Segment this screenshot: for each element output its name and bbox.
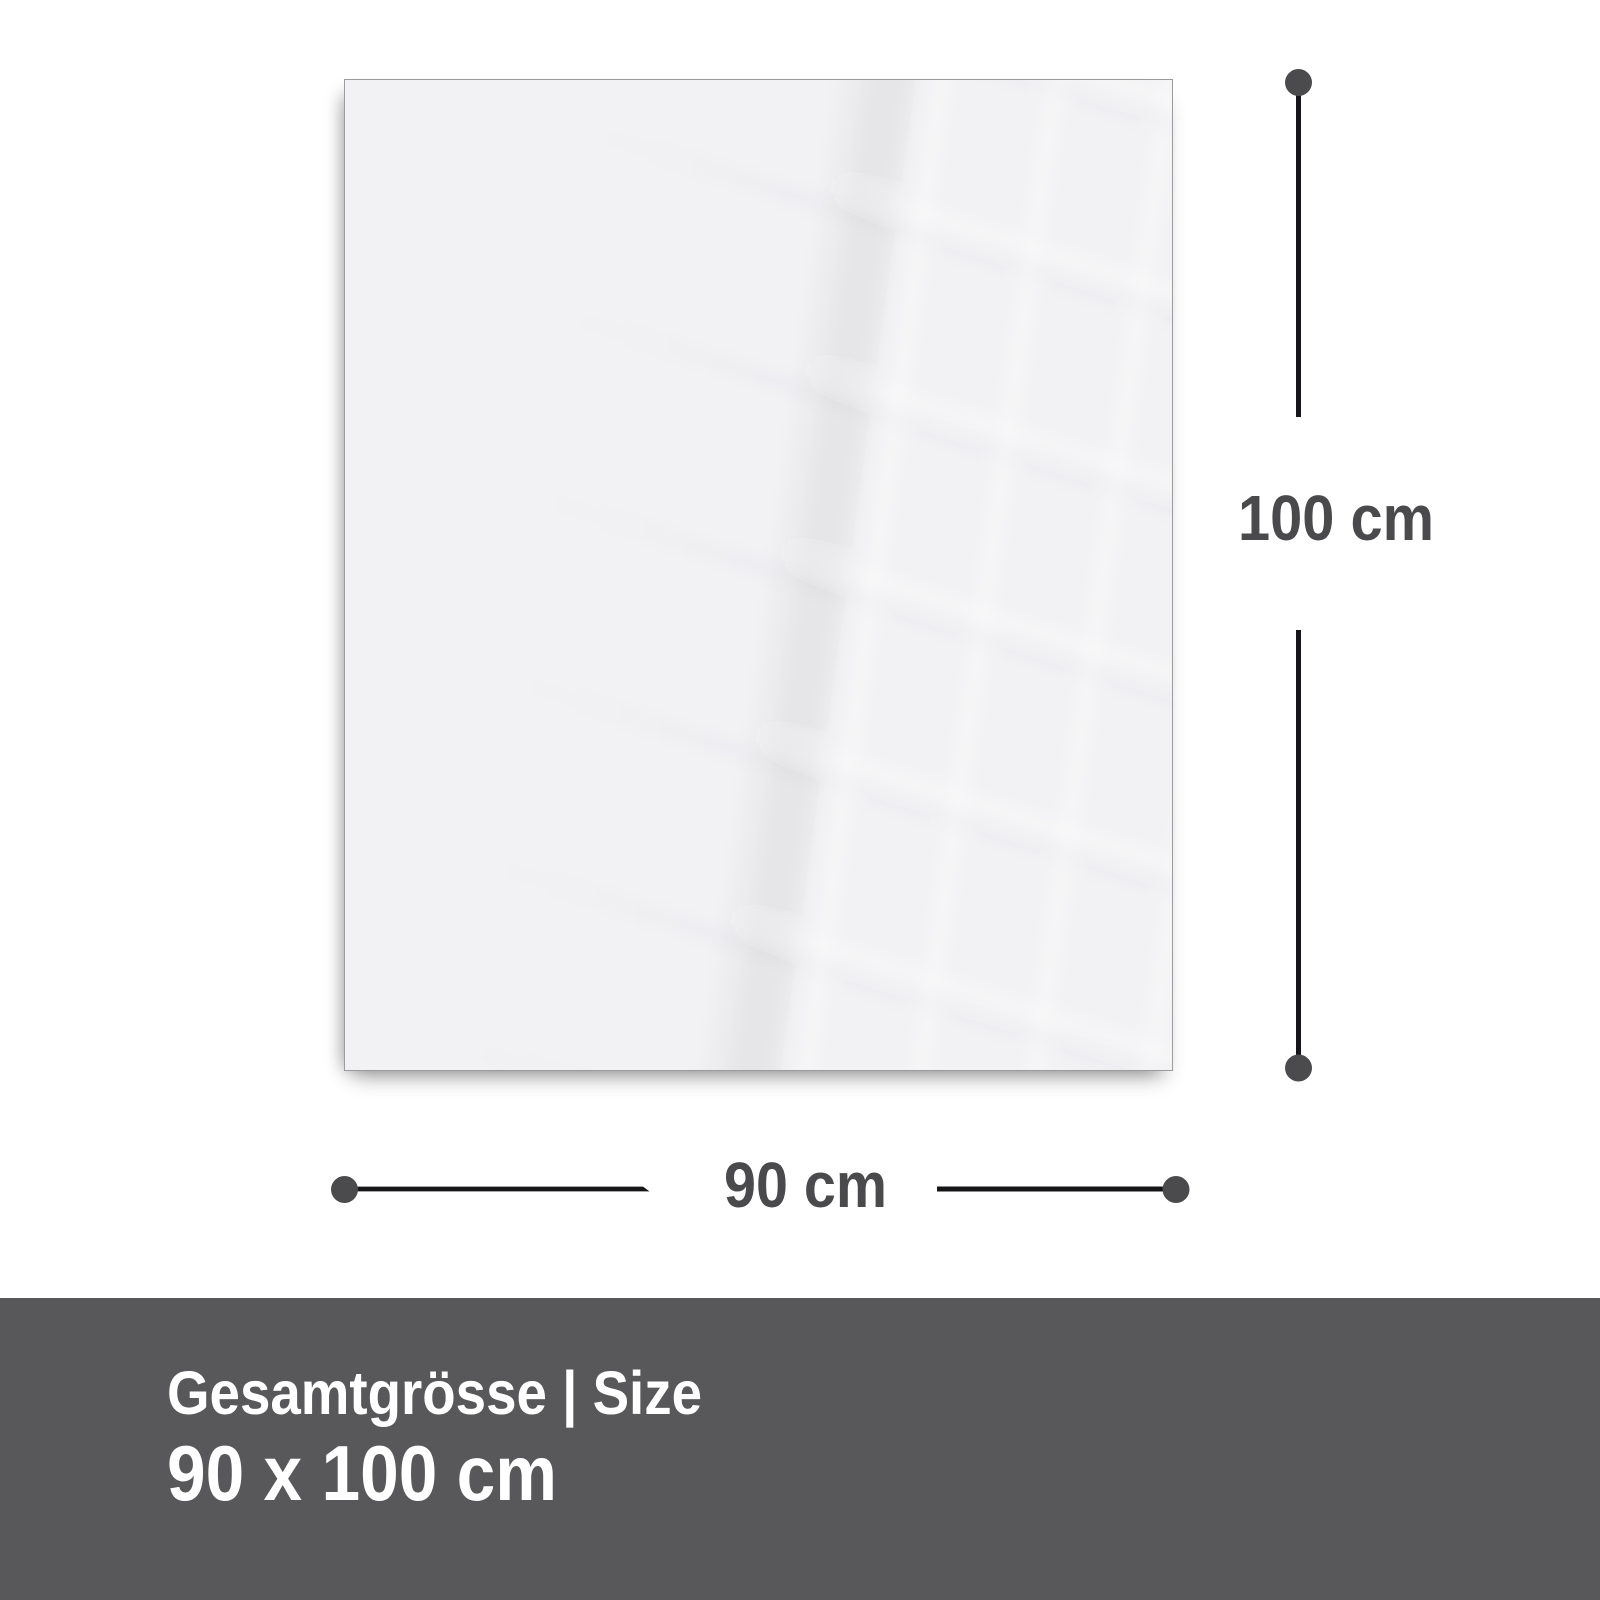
svg-text:Gesamtgrösse | Size: Gesamtgrösse | Size [167,1359,702,1429]
svg-text:90 x 100 cm: 90 x 100 cm [167,1429,557,1517]
